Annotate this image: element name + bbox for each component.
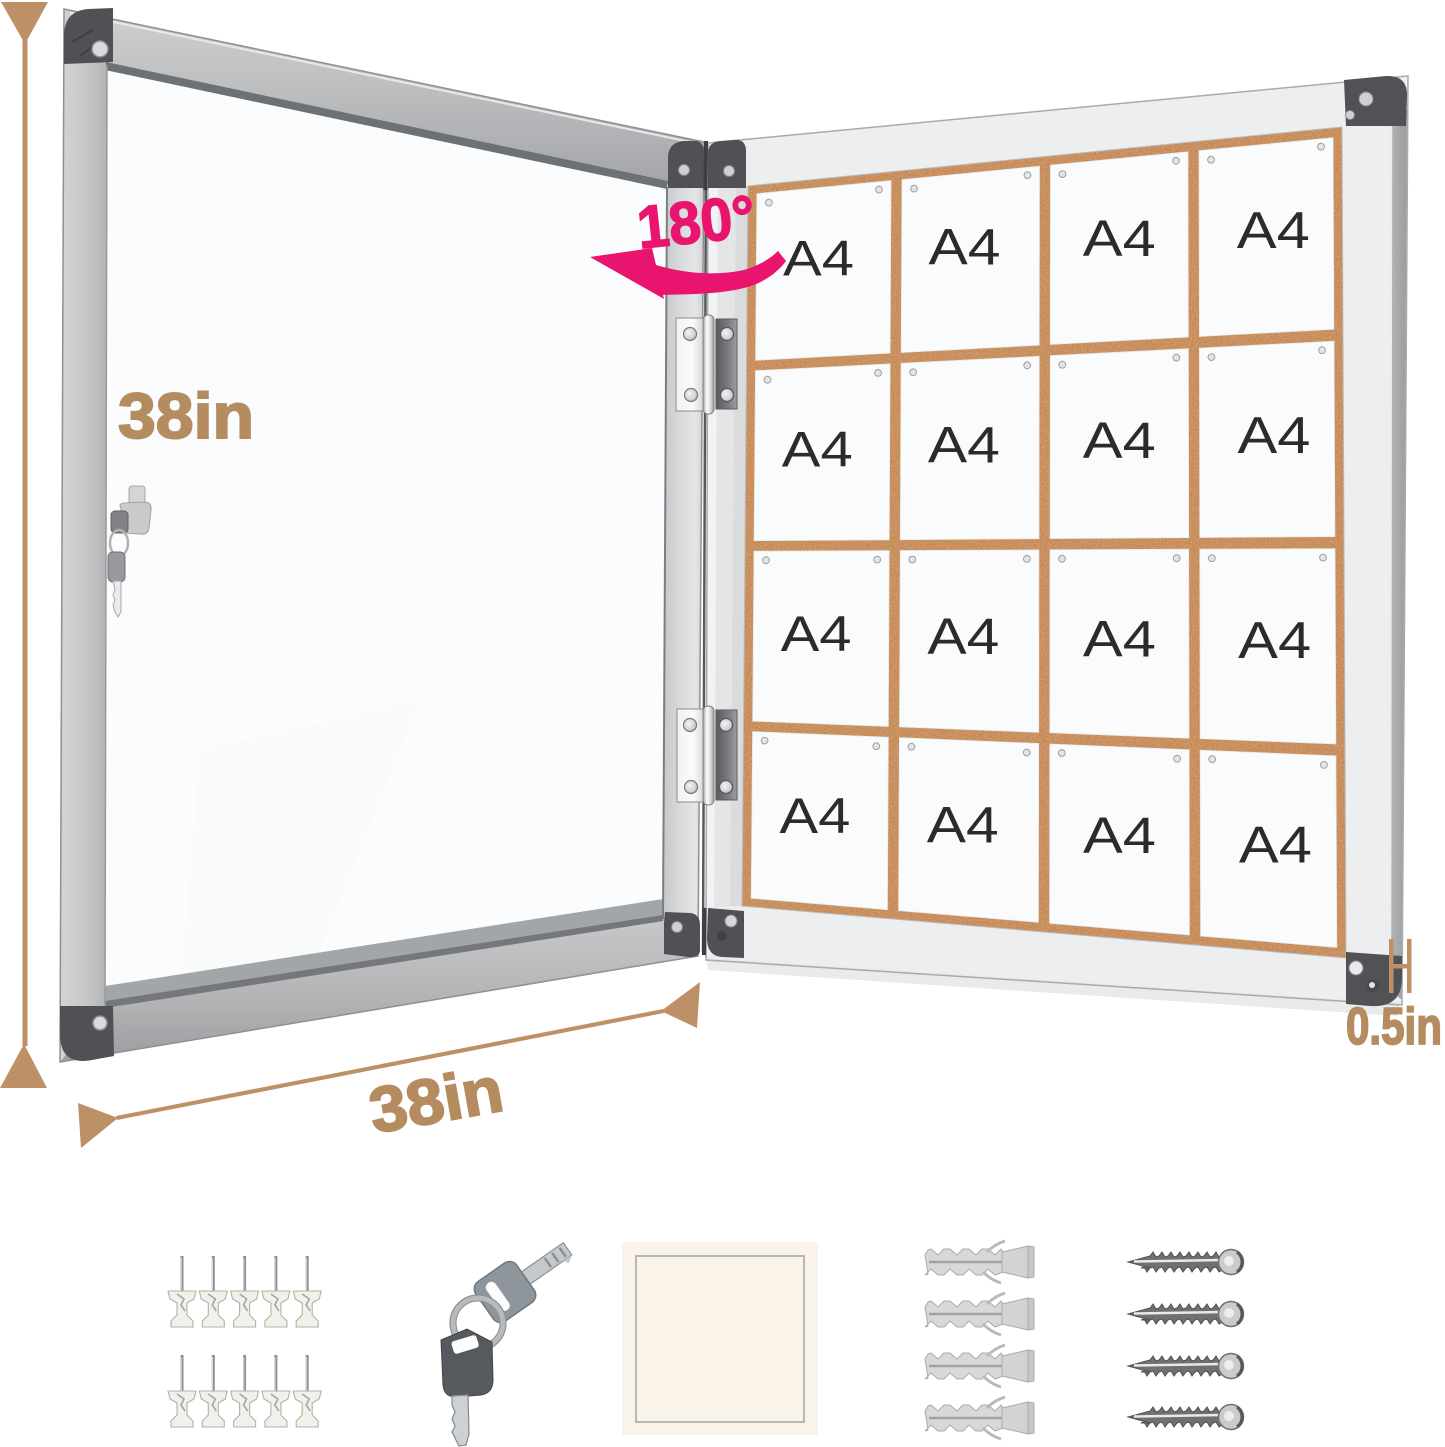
svg-text:A4: A4 <box>1083 807 1156 864</box>
svg-text:A4: A4 <box>928 417 1000 474</box>
svg-text:A4: A4 <box>927 797 999 854</box>
svg-text:A4: A4 <box>781 606 852 662</box>
svg-text:A4: A4 <box>1083 610 1156 667</box>
svg-text:A4: A4 <box>1238 612 1311 670</box>
svg-text:180°: 180° <box>634 183 758 262</box>
svg-text:A4: A4 <box>1083 210 1156 267</box>
svg-text:0.5in: 0.5in <box>1346 998 1442 1056</box>
svg-text:A4: A4 <box>1237 202 1310 260</box>
svg-text:38in: 38in <box>118 380 254 452</box>
svg-text:A4: A4 <box>783 230 854 286</box>
svg-text:A4: A4 <box>779 788 850 844</box>
svg-text:A4: A4 <box>929 218 1001 275</box>
svg-text:A4: A4 <box>1239 817 1312 875</box>
svg-text:A4: A4 <box>1238 407 1311 465</box>
svg-text:A4: A4 <box>927 608 999 665</box>
svg-text:A4: A4 <box>1083 412 1156 469</box>
svg-text:A4: A4 <box>782 422 853 478</box>
